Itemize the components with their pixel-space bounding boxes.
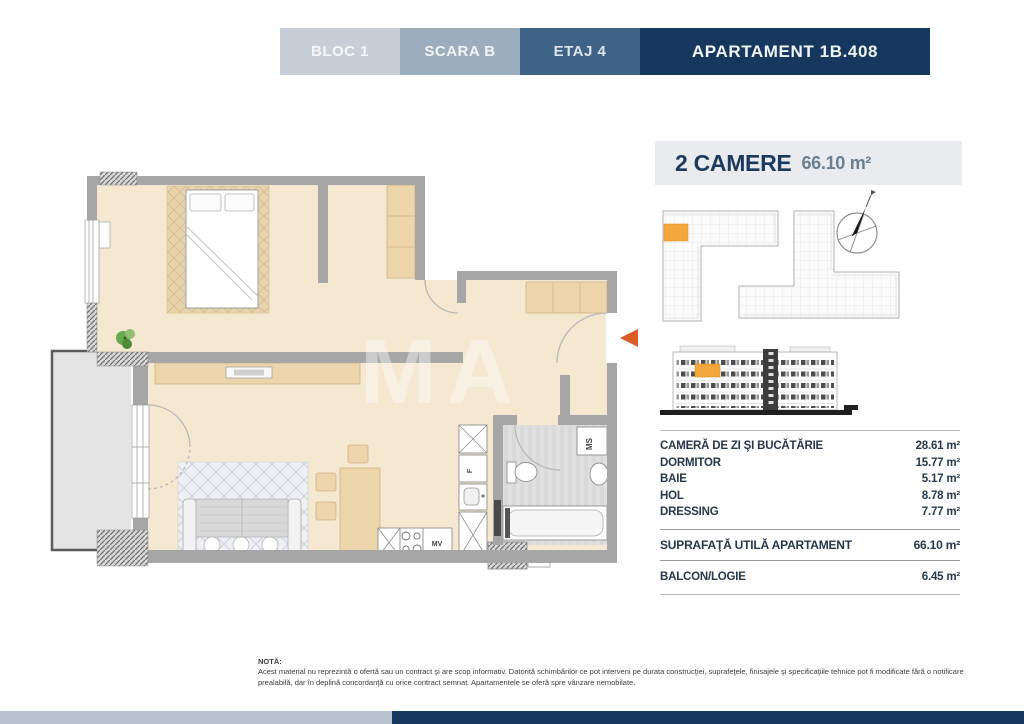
room-label: DRESSING xyxy=(660,506,718,518)
disclaimer-note: NOTĂ: Acest material nu reprezintă o ofe… xyxy=(258,657,965,689)
note-body: Acest material nu reprezintă o ofertă sa… xyxy=(258,667,965,689)
label-washing-machine: MS xyxy=(585,437,594,450)
room-value: 15.77 m² xyxy=(916,457,960,469)
radiator xyxy=(99,222,110,248)
room-label: BAIE xyxy=(660,473,687,485)
table-row: DRESSING 7.77 m² xyxy=(660,504,960,521)
building-elevation xyxy=(660,346,858,415)
tv-stand xyxy=(155,363,360,384)
total-value: 66.10 m² xyxy=(914,538,960,552)
room-value: 7.77 m² xyxy=(922,506,960,518)
entrance-arrow-icon xyxy=(620,329,638,347)
watermark: MA xyxy=(360,321,523,423)
footer-bar-light xyxy=(0,711,392,724)
room-label: DORMITOR xyxy=(660,457,721,469)
hall-wardrobe xyxy=(526,282,607,313)
table-row: BAIE 5.17 m² xyxy=(660,471,960,488)
rooms-count: 2 CAMERE xyxy=(675,150,791,177)
bedroom-window xyxy=(85,220,99,303)
page: BLOC 1 SCARA B ETAJ 4 APARTAMENT 1B.408 xyxy=(0,0,1024,724)
apartment-title: 2 CAMERE 66.10 m² xyxy=(655,141,962,185)
room-label: CAMERĂ DE ZI ŞI BUCĂTĂRIE xyxy=(660,440,823,452)
plan-canvas: F MV MS MA xyxy=(0,0,1024,724)
balcony xyxy=(52,351,133,550)
total-label: SUPRAFAŢĂ UTILĂ APARTAMENT xyxy=(660,538,852,552)
floor-plan: F MV MS MA xyxy=(52,172,638,569)
entrance-door-gap xyxy=(606,313,618,363)
total-row: SUPRAFAŢĂ UTILĂ APARTAMENT 66.10 m² xyxy=(660,529,960,562)
areas-table: CAMERĂ DE ZI ŞI BUCĂTĂRIE 28.61 m² DORMI… xyxy=(660,430,960,595)
table-row: DORMITOR 15.77 m² xyxy=(660,455,960,472)
table-row: HOL 8.78 m² xyxy=(660,488,960,505)
total-area: 66.10 m² xyxy=(801,153,871,174)
balcony-value: 6.45 m² xyxy=(922,571,960,583)
room-value: 28.61 m² xyxy=(916,440,960,452)
room-label: HOL xyxy=(660,490,684,502)
table-row: CAMERĂ DE ZI ŞI BUCĂTĂRIE 28.61 m² xyxy=(660,438,960,455)
balcony-row: BALCON/LOGIE 6.45 m² xyxy=(660,561,960,595)
room-value: 8.78 m² xyxy=(922,490,960,502)
site-plan xyxy=(663,190,899,321)
footer-bar-dark xyxy=(392,711,1024,724)
elevation-highlight-unit xyxy=(695,364,720,377)
site-plan-highlight-unit xyxy=(664,224,688,241)
label-dishwasher: MV xyxy=(432,541,443,548)
compass-icon xyxy=(837,190,877,253)
room-value: 5.17 m² xyxy=(922,473,960,485)
balcony-door-window xyxy=(132,405,149,518)
dressing-wardrobe xyxy=(387,185,415,278)
bedroom-bed xyxy=(167,186,269,313)
label-fridge: F xyxy=(467,468,474,473)
balcony-label: BALCON/LOGIE xyxy=(660,571,746,583)
note-heading: NOTĂ: xyxy=(258,657,965,666)
